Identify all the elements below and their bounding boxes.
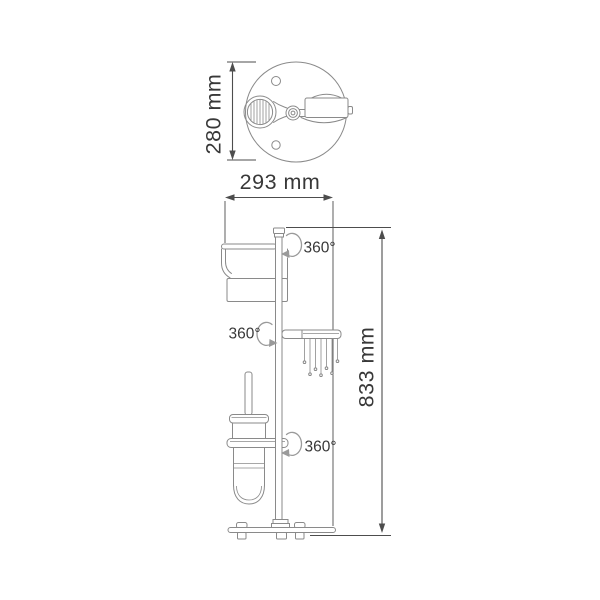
- pole-cap: [274, 228, 285, 234]
- rack-hooks: [303, 339, 339, 377]
- pole-flange-lower: [272, 524, 290, 528]
- top-view: [244, 62, 353, 162]
- brush-handle: [245, 372, 252, 415]
- dimension-label-280: 280 mm: [202, 74, 226, 155]
- mounting-hole-top: [272, 77, 281, 86]
- technical-drawing-svg: 280 mm 293 mm 833 mm: [0, 0, 600, 600]
- dimension-arrow: [229, 62, 235, 72]
- hook-rack: [282, 330, 341, 377]
- dimension-arrow: [324, 194, 334, 200]
- dimension-arrow: [379, 230, 385, 240]
- base-foot-left: [238, 533, 247, 540]
- screenshot-canvas: 280 mm 293 mm 833 mm: [0, 0, 600, 600]
- holder-end-cap: [348, 107, 353, 115]
- base-assembly: [228, 520, 336, 540]
- holder-bracket-inner: [226, 249, 232, 274]
- paper-holder-plan: [299, 94, 353, 123]
- rotation-label-middle: 360°: [229, 326, 261, 343]
- rotation-label-bottom: 360°: [305, 439, 337, 456]
- rotation-label-top: 360°: [304, 240, 336, 257]
- base-foot-right: [296, 533, 305, 540]
- dimension-arrow: [229, 151, 235, 161]
- roll-lower-arc: [301, 118, 347, 123]
- mounting-hole-bottom: [272, 141, 280, 149]
- rack-bar: [282, 330, 341, 339]
- dimension-label-833: 833 mm: [355, 327, 379, 408]
- holder-body: [305, 98, 348, 118]
- pole: [274, 228, 285, 521]
- holder-rail: [222, 244, 277, 249]
- dimension-label-293: 293 mm: [240, 170, 321, 194]
- rotation-arrow-icon: [281, 233, 302, 258]
- pole-cap-neck: [275, 234, 284, 238]
- dimension-833: 833 mm: [286, 228, 391, 536]
- swivel-hub: [286, 106, 300, 120]
- front-view: 360° 360° 360°: [222, 228, 342, 539]
- soap-dish-ribs: [251, 98, 269, 126]
- cup-bottom-inner: [237, 486, 262, 500]
- pole-tube: [276, 237, 283, 521]
- base-foot-center: [277, 533, 287, 540]
- soap-dish: [244, 96, 276, 128]
- cup-rim: [230, 415, 269, 424]
- roll-upper-arc: [312, 94, 342, 98]
- dimension-arrow: [379, 524, 385, 534]
- dimension-arrow: [225, 194, 235, 200]
- base-plate: [228, 528, 336, 533]
